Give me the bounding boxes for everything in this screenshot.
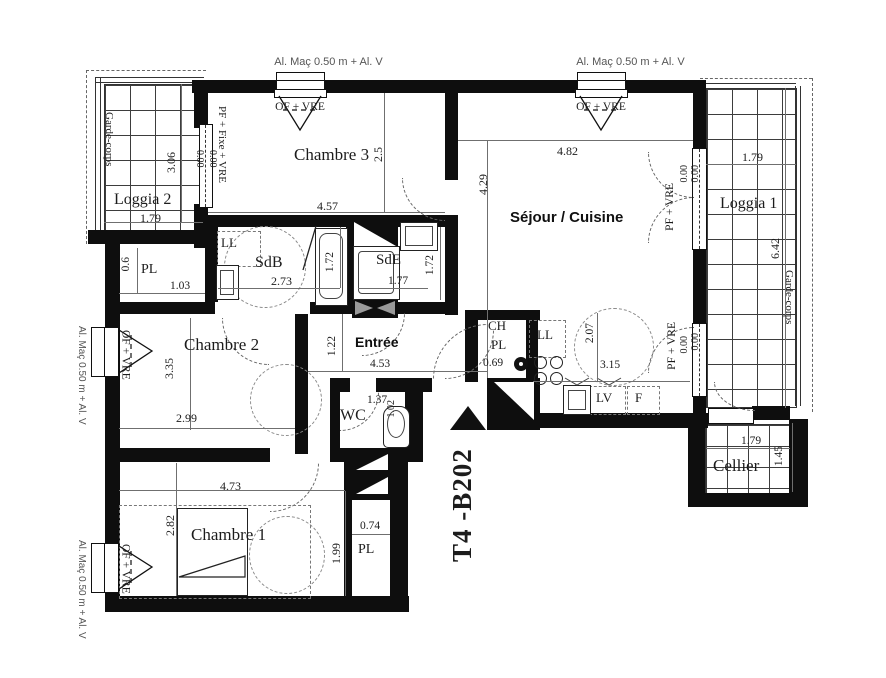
wall-wc-left [330,378,340,455]
cooktop-burner [534,372,547,385]
masonry-note-left-1: Al. Maç 0.50 m + Al. V [76,326,86,425]
chpl-label-line1: CH [488,319,506,332]
cellier-label: Cellier [713,457,759,474]
cooktop-burner [550,356,563,369]
loggia2-outer-dashed-left [86,70,87,244]
wall-shaft-wc [344,452,390,500]
wall [194,86,208,128]
window-sejour-sill [575,89,628,98]
dim-line [340,227,341,288]
wall-sejour-right-mid [693,246,706,325]
window-chambre2-left [91,327,119,377]
sill-height-label: 0.00 [680,165,690,183]
dim-line [458,140,693,141]
cellier-width-dim: 1.79 [741,436,761,448]
dim-line [342,314,343,372]
chpl-label-line2: PL [491,338,506,351]
wall-entree-bottom-3 [402,378,432,392]
chambre1-label: Chambre 1 [191,526,266,543]
sde-depth-dim: 1.72 [425,255,437,275]
sill-height-label: 0.00 [207,150,217,168]
dim-line [706,164,796,165]
entree-label: Entrée [355,335,399,349]
wall-hall-top-3 [398,302,445,314]
entree-depth-dim: 1.22 [327,336,339,356]
loggia2-garde-corps-label: Garde-corps [103,112,114,166]
sill-height-label: 0.00 [691,165,701,183]
chambre3-depth-dim: 2.5 [372,147,384,162]
wc-depth-dim: 1.02 [387,400,397,418]
pf-vre-label-lower: PF + VRE [667,322,679,370]
loggia2-outer-dashed-top [86,70,206,71]
dim-line [440,227,441,300]
wall-sejour-left-lower [445,218,458,315]
chambre1-depth-dim-2: 1.99 [330,543,342,564]
loggia2-height-dim: 3.06 [165,152,177,173]
of-vre-label-chambre2: OF + VRE [119,330,131,380]
cuisine-turning-circle [574,308,654,386]
pl-bas-label: PL [358,543,374,557]
wall-entree-bottom-2 [376,378,402,392]
dim-line [785,88,786,408]
of-vre-label-chambre1: OF + VRE [119,544,131,594]
wall-pl-right [390,455,408,612]
loggia1-outer-dashed-top [700,78,812,79]
cooktop-burner [550,372,563,385]
loggia1-outer-dashed-right [812,78,813,412]
loggia2-label: Loggia 2 [114,192,171,208]
pl-bas-width-dim: 0.74 [360,521,380,533]
sejour-width-dim: 4.82 [557,145,578,157]
pf-vre-label-upper: PF + VRE [665,183,677,231]
pl-haut-depth-dim: 0.6 [121,257,133,271]
sill-height-label: 0.00 [194,150,204,168]
kitchen-sink [563,385,591,415]
entree-width-dim: 4.53 [370,359,390,371]
floor-plan: Al. Maç 0.50 m + Al. V Al. Maç 0.50 m + … [0,0,886,678]
wc-width-dim: 1.37 [367,395,387,407]
cuisine-washer-label: LL [537,328,553,341]
sdb-washer-label: LL [221,236,237,249]
loggia1-garde-corps-rail [795,86,801,406]
wall-sejour-left-upper [445,88,458,180]
wall-chambre2-bottom [105,448,270,462]
dim-line [358,288,428,289]
dim-line [181,84,182,222]
masonry-note-top-left: Al. Maç 0.50 m + Al. V [266,57,391,68]
dim-line [137,248,138,294]
loggia1-label: Loggia 1 [720,196,777,212]
pf-fixe-vre-label: PF + Fixe + VRE [216,106,227,183]
sdb-depth-dim: 1.72 [325,252,337,272]
wall-loggia1-cellier [752,406,790,420]
loggia2-width-dim: 1.79 [140,212,161,224]
chambre3-label: Chambre 3 [294,146,369,163]
dim-line [352,534,390,535]
cuisine-fridge-zone [627,386,660,415]
loggia1-garde-corps-label: Garde-corps [783,270,794,324]
sill-height-label: 0.00 [691,333,701,351]
cuisine-fridge-label: F [635,391,642,404]
loggia2-garde-corps-rail [95,78,101,231]
cuisine-depth-dim: 2.07 [585,323,597,343]
chambre2-depth-dim: 3.35 [163,358,175,379]
sde-width-dim: 1.77 [388,276,408,288]
wall-hall-top-1 [105,302,215,314]
wall-cellier-bottom [688,493,808,507]
wall-entree-bottom-1 [340,378,350,392]
chambre1-width-dim: 4.73 [220,480,241,492]
masonry-note-top-right: Al. Maç 0.50 m + Al. V [568,57,693,68]
wall-loggia2-bottom [88,230,208,244]
dim-line [533,381,690,382]
loggia1-width-dim: 1.79 [742,151,763,163]
masonry-note-left-2: Al. Maç 0.50 m + Al. V [76,540,86,639]
sde-label: SdE [376,253,401,268]
sejour-depth-dim: 4.29 [477,174,489,195]
of-vre-label-sejour: OF + VRE [573,102,629,114]
window-sejour-top [577,72,626,90]
pl-haut-width-dim: 1.03 [170,281,190,293]
chambre2-width-dim: 2.99 [176,412,197,424]
sdb-width-dim: 2.73 [271,275,292,287]
window-chambre3-top [276,72,325,90]
glazing-pf-vre-sejour-upper [692,148,707,250]
chambre2-turning-circle [250,364,322,436]
loggia1-floor-tiles [706,88,797,408]
unit-id-label: T4 -B202 [449,417,476,562]
wc-label: WC [340,408,366,424]
window-chambre1-left [91,543,119,593]
sdb-washbasin [216,265,239,300]
loggia1-height-dim: 6.42 [769,238,781,259]
of-vre-label-chambre3: OF + VRE [272,102,328,114]
chambre1-depth-dim: 2.82 [164,515,176,536]
cuisine-width-dim: 3.15 [600,360,620,372]
cellier-depth-dim: 1.45 [774,446,786,466]
wall-kitchen-bottom [530,413,708,428]
wall-shaft-sde [352,218,398,248]
loggia2-garde-corps-rail-top [95,77,204,83]
chpl-width-dim: 0.69 [483,358,503,370]
window-chambre3-sill [274,89,327,98]
sdb-label: SdB [255,255,283,271]
sejour-label: Séjour / Cuisine [510,210,623,225]
dim-line [119,428,295,429]
water-heater [514,357,528,371]
dim-line [597,313,598,381]
dim-line [792,423,793,492]
pl-haut-label: PL [141,263,157,277]
sill-height-label: 0.00 [680,336,690,354]
chambre2-label: Chambre 2 [184,336,259,353]
wall-corner-ne [680,80,706,93]
dim-line [218,288,340,289]
cuisine-dishwasher-label: LV [596,391,612,404]
chambre3-width-dim: 4.57 [317,200,338,212]
dim-line [308,371,488,372]
dim-line [119,293,205,294]
loggia1-garde-corps-rail-top [706,83,796,89]
sde-washbasin [400,222,438,251]
cooktop-burner [534,356,547,369]
dim-line [345,491,346,596]
bed [177,508,248,596]
